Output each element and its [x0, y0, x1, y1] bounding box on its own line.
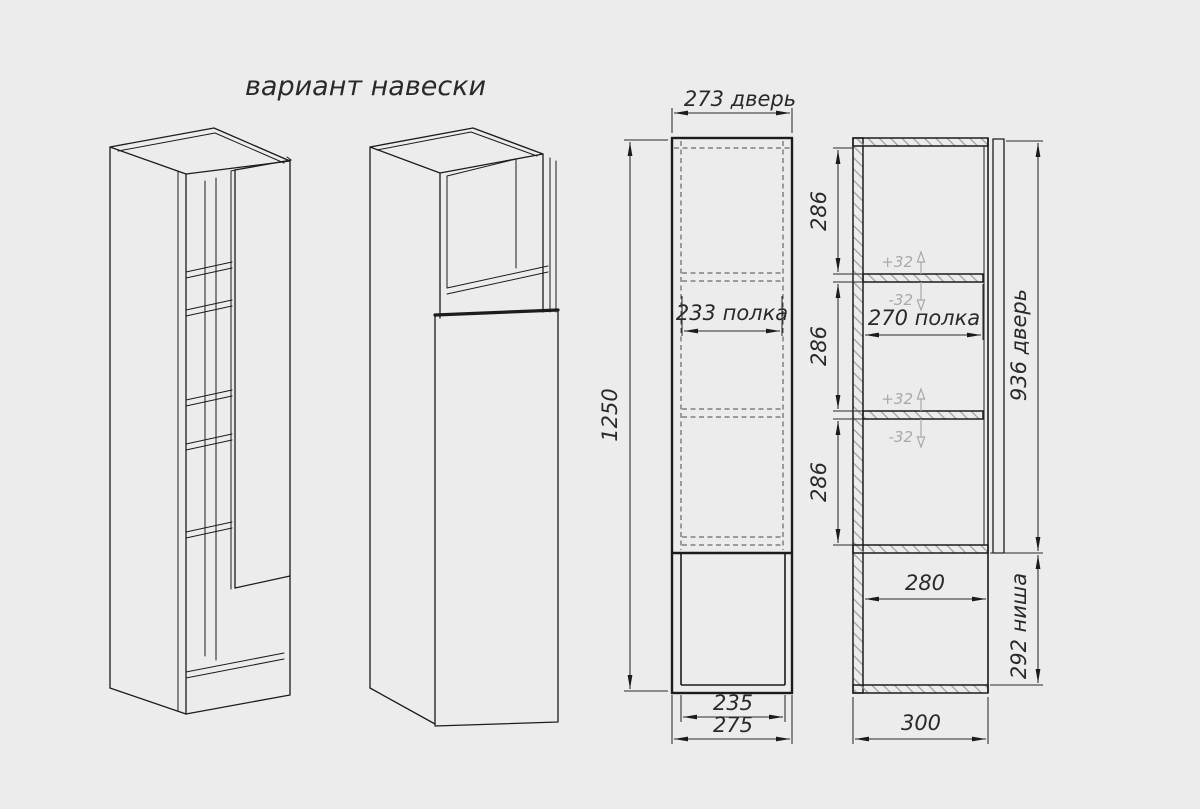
- shelf2-up-adjust: +32: [881, 390, 913, 408]
- top-panel-section: [853, 138, 988, 146]
- technical-drawing-page: вариант навески: [0, 0, 1200, 809]
- dim-door-height: 936 дверь: [1007, 289, 1031, 401]
- dim-shelf-width: 233 полка: [676, 301, 788, 325]
- dim-overall-depth: 300: [901, 711, 941, 735]
- dim-overall-width: 275: [713, 713, 753, 737]
- back-panel-section: [853, 138, 863, 693]
- iso-view-door-open: [110, 128, 291, 714]
- dim-spacing-middle: 286: [807, 326, 831, 366]
- dim-niche-height: 292 ниша: [1007, 573, 1031, 679]
- front-view: 273 дверь 233 полка 1250 235 275: [598, 87, 796, 744]
- dim-niche-depth: 280: [905, 571, 945, 595]
- dim-spacing-bottom: 286: [807, 462, 831, 502]
- section-view: 286 286 286 +32 -32 +32 -32 270 полка 93…: [807, 138, 1043, 744]
- shelf-1-section: [863, 274, 983, 282]
- dim-niche-width: 235: [713, 691, 753, 715]
- drawing-title: вариант навески: [245, 71, 486, 102]
- shelf2-down-adjust: -32: [889, 428, 914, 446]
- shelf1-up-adjust: +32: [881, 253, 913, 271]
- bottom-panel-section: [853, 685, 988, 693]
- iso-view-door-closed: [370, 128, 558, 726]
- dim-overall-height: 1250: [598, 388, 622, 441]
- cabinet-drawing-svg: вариант навески: [0, 0, 1200, 809]
- dim-spacing-top: 286: [807, 191, 831, 231]
- door-section: [993, 139, 1004, 553]
- mid-panel-section: [853, 545, 988, 553]
- dim-shelf-depth: 270 полка: [868, 306, 980, 330]
- dim-door-width: 273 дверь: [684, 87, 796, 111]
- shelf-2-section: [863, 411, 983, 419]
